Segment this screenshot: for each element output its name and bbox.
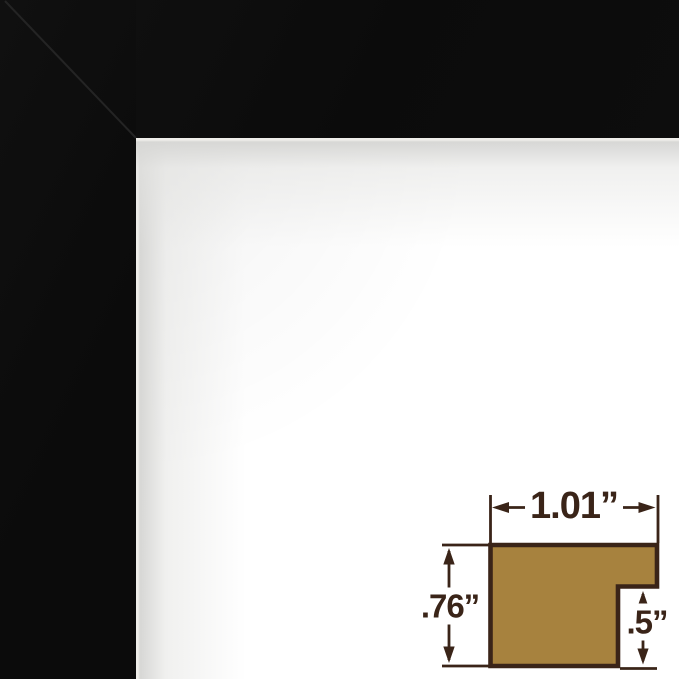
- rabbet-dimension-label: .5”: [621, 604, 672, 641]
- product-image: 1.01” .76” .5”: [0, 0, 679, 679]
- width-dimension-label: 1.01”: [525, 485, 623, 527]
- height-dimension-label: .76”: [416, 588, 484, 625]
- frame-left-rail: [0, 0, 136, 679]
- frame-opening: [136, 138, 679, 679]
